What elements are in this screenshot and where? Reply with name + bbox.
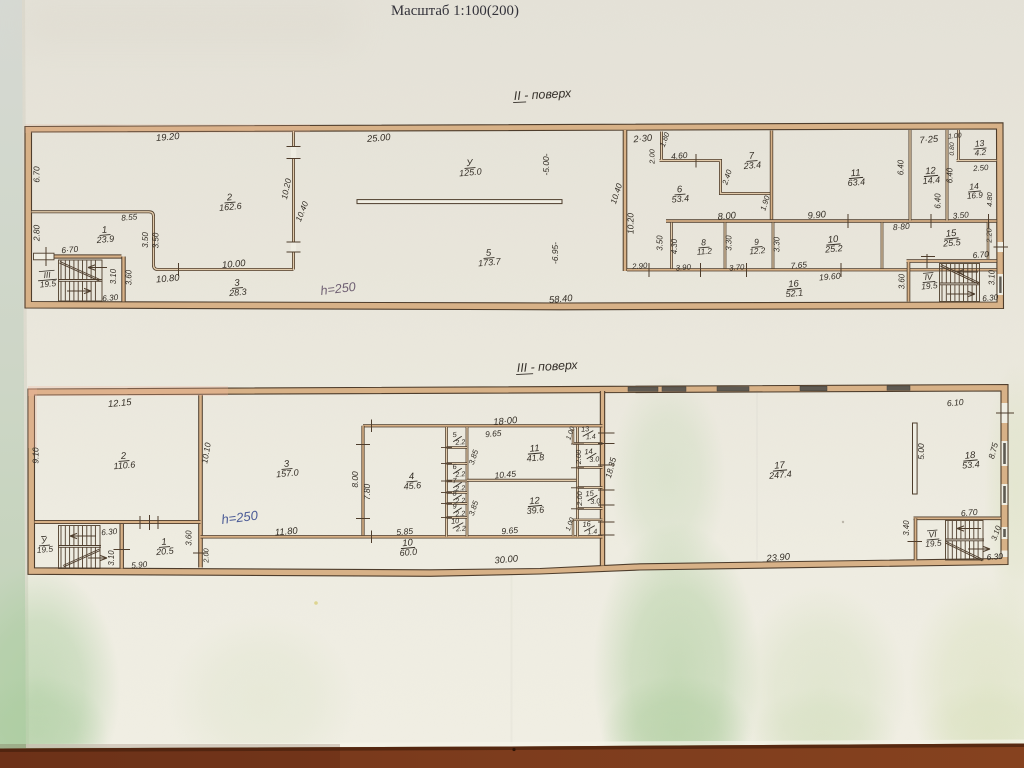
svg-text:25.5: 25.5 <box>942 237 962 249</box>
svg-text:2.00: 2.00 <box>202 547 211 563</box>
svg-text:173.7: 173.7 <box>478 256 502 268</box>
svg-text:3.50: 3.50 <box>152 232 161 248</box>
svg-text:3.50: 3.50 <box>141 232 150 248</box>
svg-text:2.00: 2.00 <box>648 148 657 165</box>
svg-text:8·80: 8·80 <box>892 221 910 232</box>
svg-text:3.60: 3.60 <box>125 269 134 285</box>
svg-text:2.2: 2.2 <box>455 526 466 534</box>
svg-text:30.00: 30.00 <box>494 552 519 565</box>
svg-text:23.90: 23.90 <box>765 550 791 563</box>
svg-text:2.90: 2.90 <box>631 261 649 271</box>
svg-text:7.65: 7.65 <box>790 259 807 270</box>
svg-text:52.1: 52.1 <box>785 288 803 299</box>
svg-text:-6.95-: -6.95- <box>550 242 560 264</box>
svg-text:63.4: 63.4 <box>847 177 865 188</box>
svg-text:6.70: 6.70 <box>32 166 42 183</box>
svg-text:8.00: 8.00 <box>350 471 360 488</box>
svg-text:10.00: 10.00 <box>222 257 247 270</box>
svg-text:3.60: 3.60 <box>185 530 194 546</box>
svg-text:60.0: 60.0 <box>399 547 417 558</box>
svg-text:4.80: 4.80 <box>985 191 994 206</box>
svg-text:6.10: 6.10 <box>946 397 964 408</box>
svg-text:1.00: 1.00 <box>948 132 962 140</box>
svg-text:3.10: 3.10 <box>109 268 118 284</box>
svg-text:9.65: 9.65 <box>485 428 502 439</box>
svg-text:2.80: 2.80 <box>32 225 42 243</box>
svg-text:19.5: 19.5 <box>921 280 938 291</box>
svg-text:12.15: 12.15 <box>108 396 133 409</box>
svg-text:6.70: 6.70 <box>960 507 978 518</box>
svg-text:2.00: 2.00 <box>575 490 584 506</box>
svg-text:25.2: 25.2 <box>824 243 843 255</box>
svg-text:9.65: 9.65 <box>501 525 519 536</box>
svg-text:1.4: 1.4 <box>587 529 597 537</box>
svg-text:7·25: 7·25 <box>919 133 939 146</box>
svg-text:19.5: 19.5 <box>925 538 942 549</box>
svg-text:3.0: 3.0 <box>589 454 600 464</box>
svg-text:9.90: 9.90 <box>807 208 827 221</box>
svg-text:3.30: 3.30 <box>773 236 782 252</box>
svg-text:19.5: 19.5 <box>36 544 53 555</box>
svg-text:19.60: 19.60 <box>819 271 842 283</box>
svg-text:3.50: 3.50 <box>952 210 969 220</box>
svg-text:10.45: 10.45 <box>494 469 517 481</box>
svg-text:5.00: 5.00 <box>916 443 926 460</box>
svg-text:11.2: 11.2 <box>696 247 712 257</box>
svg-text:2.00: 2.00 <box>574 449 583 465</box>
svg-text:6.40: 6.40 <box>934 193 943 209</box>
svg-text:3.60: 3.60 <box>898 273 907 289</box>
svg-text:3.10: 3.10 <box>107 550 116 566</box>
svg-text:2.20: 2.20 <box>985 227 994 243</box>
svg-text:6.70: 6.70 <box>972 249 989 260</box>
svg-text:8.55: 8.55 <box>121 212 138 222</box>
svg-text:45.6: 45.6 <box>403 480 421 491</box>
svg-text:10.80: 10.80 <box>156 271 181 284</box>
svg-text:1.4: 1.4 <box>586 434 596 442</box>
svg-text:4.2: 4.2 <box>974 148 987 158</box>
svg-text:3.90: 3.90 <box>675 262 692 272</box>
svg-text:4.60: 4.60 <box>671 150 688 161</box>
svg-text:6.40: 6.40 <box>897 159 906 175</box>
svg-text:247.4: 247.4 <box>768 469 792 481</box>
svg-text:2·30: 2·30 <box>632 132 653 145</box>
svg-text:3.30: 3.30 <box>725 235 734 251</box>
svg-text:18·00: 18·00 <box>493 414 519 427</box>
svg-text:6.30: 6.30 <box>982 293 999 303</box>
svg-text:3.10: 3.10 <box>988 269 997 285</box>
svg-text:39.6: 39.6 <box>526 505 544 516</box>
svg-text:9.10: 9.10 <box>31 447 41 464</box>
svg-text:6·70: 6·70 <box>61 244 79 255</box>
svg-text:53.4: 53.4 <box>671 193 689 204</box>
svg-text:110.6: 110.6 <box>113 459 136 471</box>
svg-text:16.9: 16.9 <box>967 190 984 200</box>
svg-text:12.2: 12.2 <box>749 246 766 256</box>
svg-text:157.0: 157.0 <box>276 467 299 479</box>
svg-text:11.80: 11.80 <box>274 524 298 537</box>
svg-text:Масштаб 1:100(200): Масштаб 1:100(200) <box>391 3 519 19</box>
svg-text:5.90: 5.90 <box>131 560 148 570</box>
svg-text:25.00: 25.00 <box>366 131 392 144</box>
svg-text:6.30: 6.30 <box>986 551 1003 562</box>
svg-text:9: 9 <box>452 501 457 510</box>
svg-text:23.9: 23.9 <box>95 234 114 246</box>
svg-text:3.50: 3.50 <box>656 235 665 251</box>
svg-text:3.70: 3.70 <box>729 262 746 272</box>
svg-text:0.80: 0.80 <box>949 142 956 155</box>
svg-text:41.8: 41.8 <box>526 452 544 463</box>
svg-text:58.40: 58.40 <box>549 292 574 305</box>
svg-text:6.40: 6.40 <box>946 167 955 183</box>
svg-text:14.4: 14.4 <box>922 175 940 186</box>
svg-text:2.50: 2.50 <box>972 163 990 173</box>
svg-text:8.00: 8.00 <box>717 209 737 222</box>
svg-text:28.3: 28.3 <box>228 287 247 299</box>
svg-text:3.40: 3.40 <box>902 520 911 536</box>
svg-text:7.80: 7.80 <box>362 484 372 501</box>
svg-text:3.0: 3.0 <box>590 496 601 506</box>
svg-text:4.30: 4.30 <box>670 238 679 254</box>
svg-text:23.4: 23.4 <box>742 160 761 172</box>
svg-text:-5.00-: -5.00- <box>541 153 551 175</box>
svg-text:6.30: 6.30 <box>102 293 119 303</box>
svg-text:20.5: 20.5 <box>155 546 175 558</box>
svg-text:162.6: 162.6 <box>219 201 242 213</box>
svg-text:6.30: 6.30 <box>101 527 118 537</box>
svg-text:125.0: 125.0 <box>459 166 482 178</box>
svg-text:2.2: 2.2 <box>454 439 465 447</box>
svg-text:53.4: 53.4 <box>962 459 980 470</box>
svg-text:5.85: 5.85 <box>396 526 414 537</box>
svg-text:10.20: 10.20 <box>626 213 636 234</box>
svg-text:19.5: 19.5 <box>39 278 56 289</box>
